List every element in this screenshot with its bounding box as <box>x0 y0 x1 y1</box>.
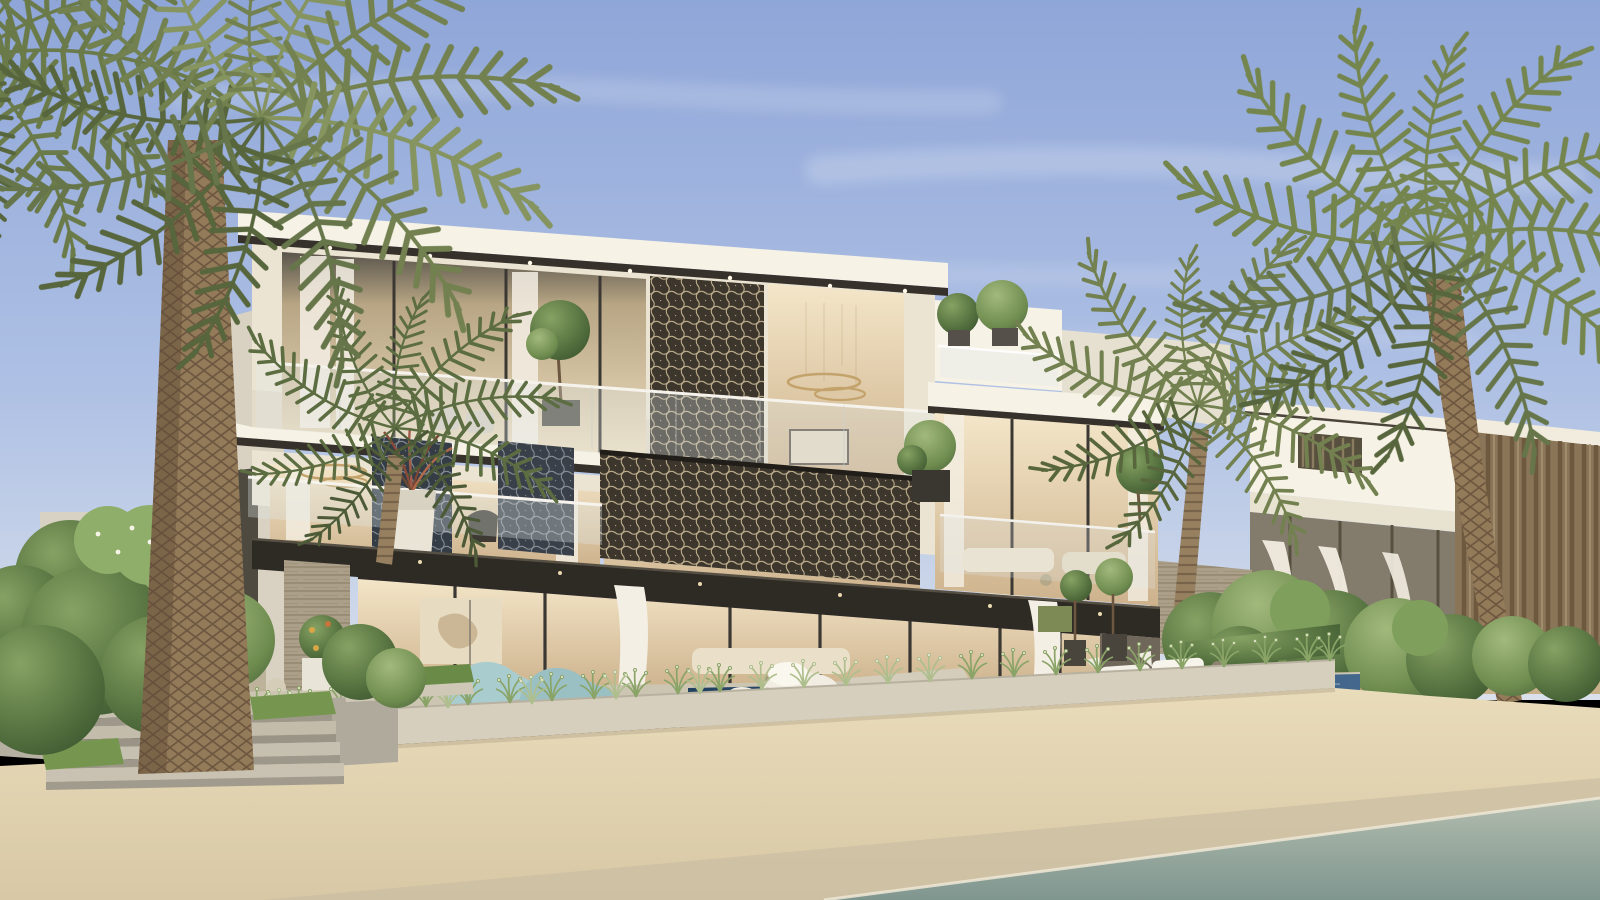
interior-green-art <box>1038 606 1072 632</box>
interior-artwork <box>420 598 502 664</box>
villa-render-scene <box>0 0 1600 900</box>
render-stage <box>0 0 1600 900</box>
